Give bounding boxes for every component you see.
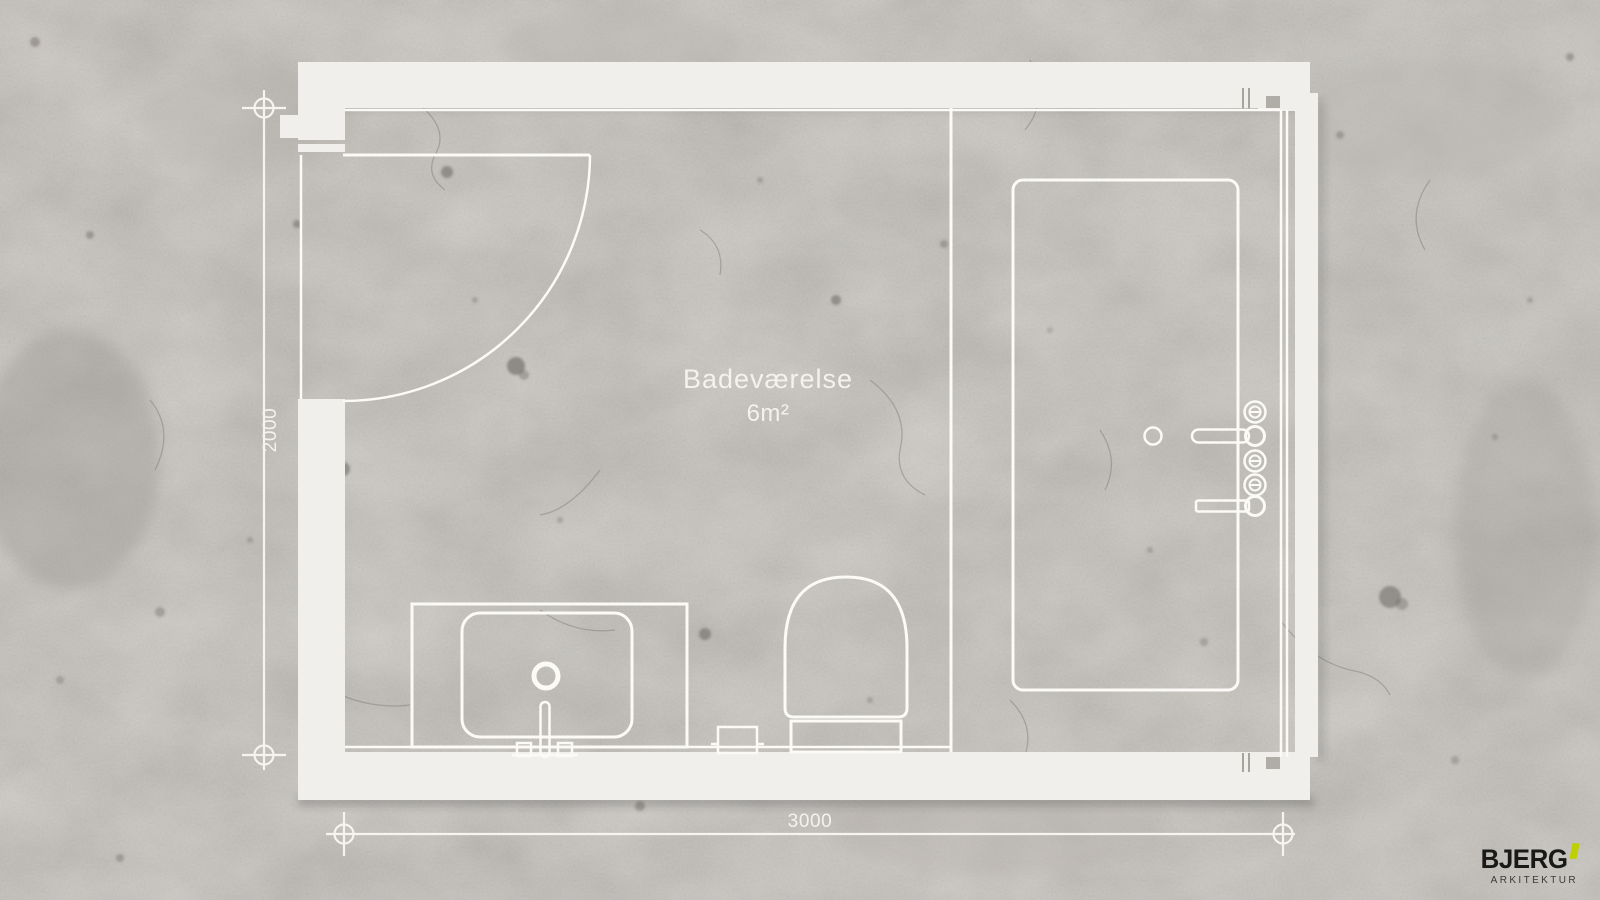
bottom-wall xyxy=(298,752,1310,800)
floor-plan-drawing: 2000 3000 Badeværelse 6m² xyxy=(0,0,1600,900)
top-wall xyxy=(298,62,1310,108)
dimension-height-label: 2000 xyxy=(260,408,281,453)
logo-subtitle: ARKITEKTUR xyxy=(1477,875,1578,886)
room-label: Badeværelse xyxy=(683,364,853,394)
bjerg-logo: BJERG ARKITEKTUR xyxy=(1477,846,1578,886)
logo-wordmark: BJERG xyxy=(1481,846,1568,873)
door-jamb-bottom xyxy=(298,399,345,409)
dimension-width-label: 3000 xyxy=(788,811,833,832)
concrete-background: 2000 3000 Badeværelse 6m² BJERG ARKITEKT… xyxy=(0,0,1600,900)
room-area-label: 6m² xyxy=(747,400,790,427)
door-jamb-top xyxy=(298,144,345,152)
